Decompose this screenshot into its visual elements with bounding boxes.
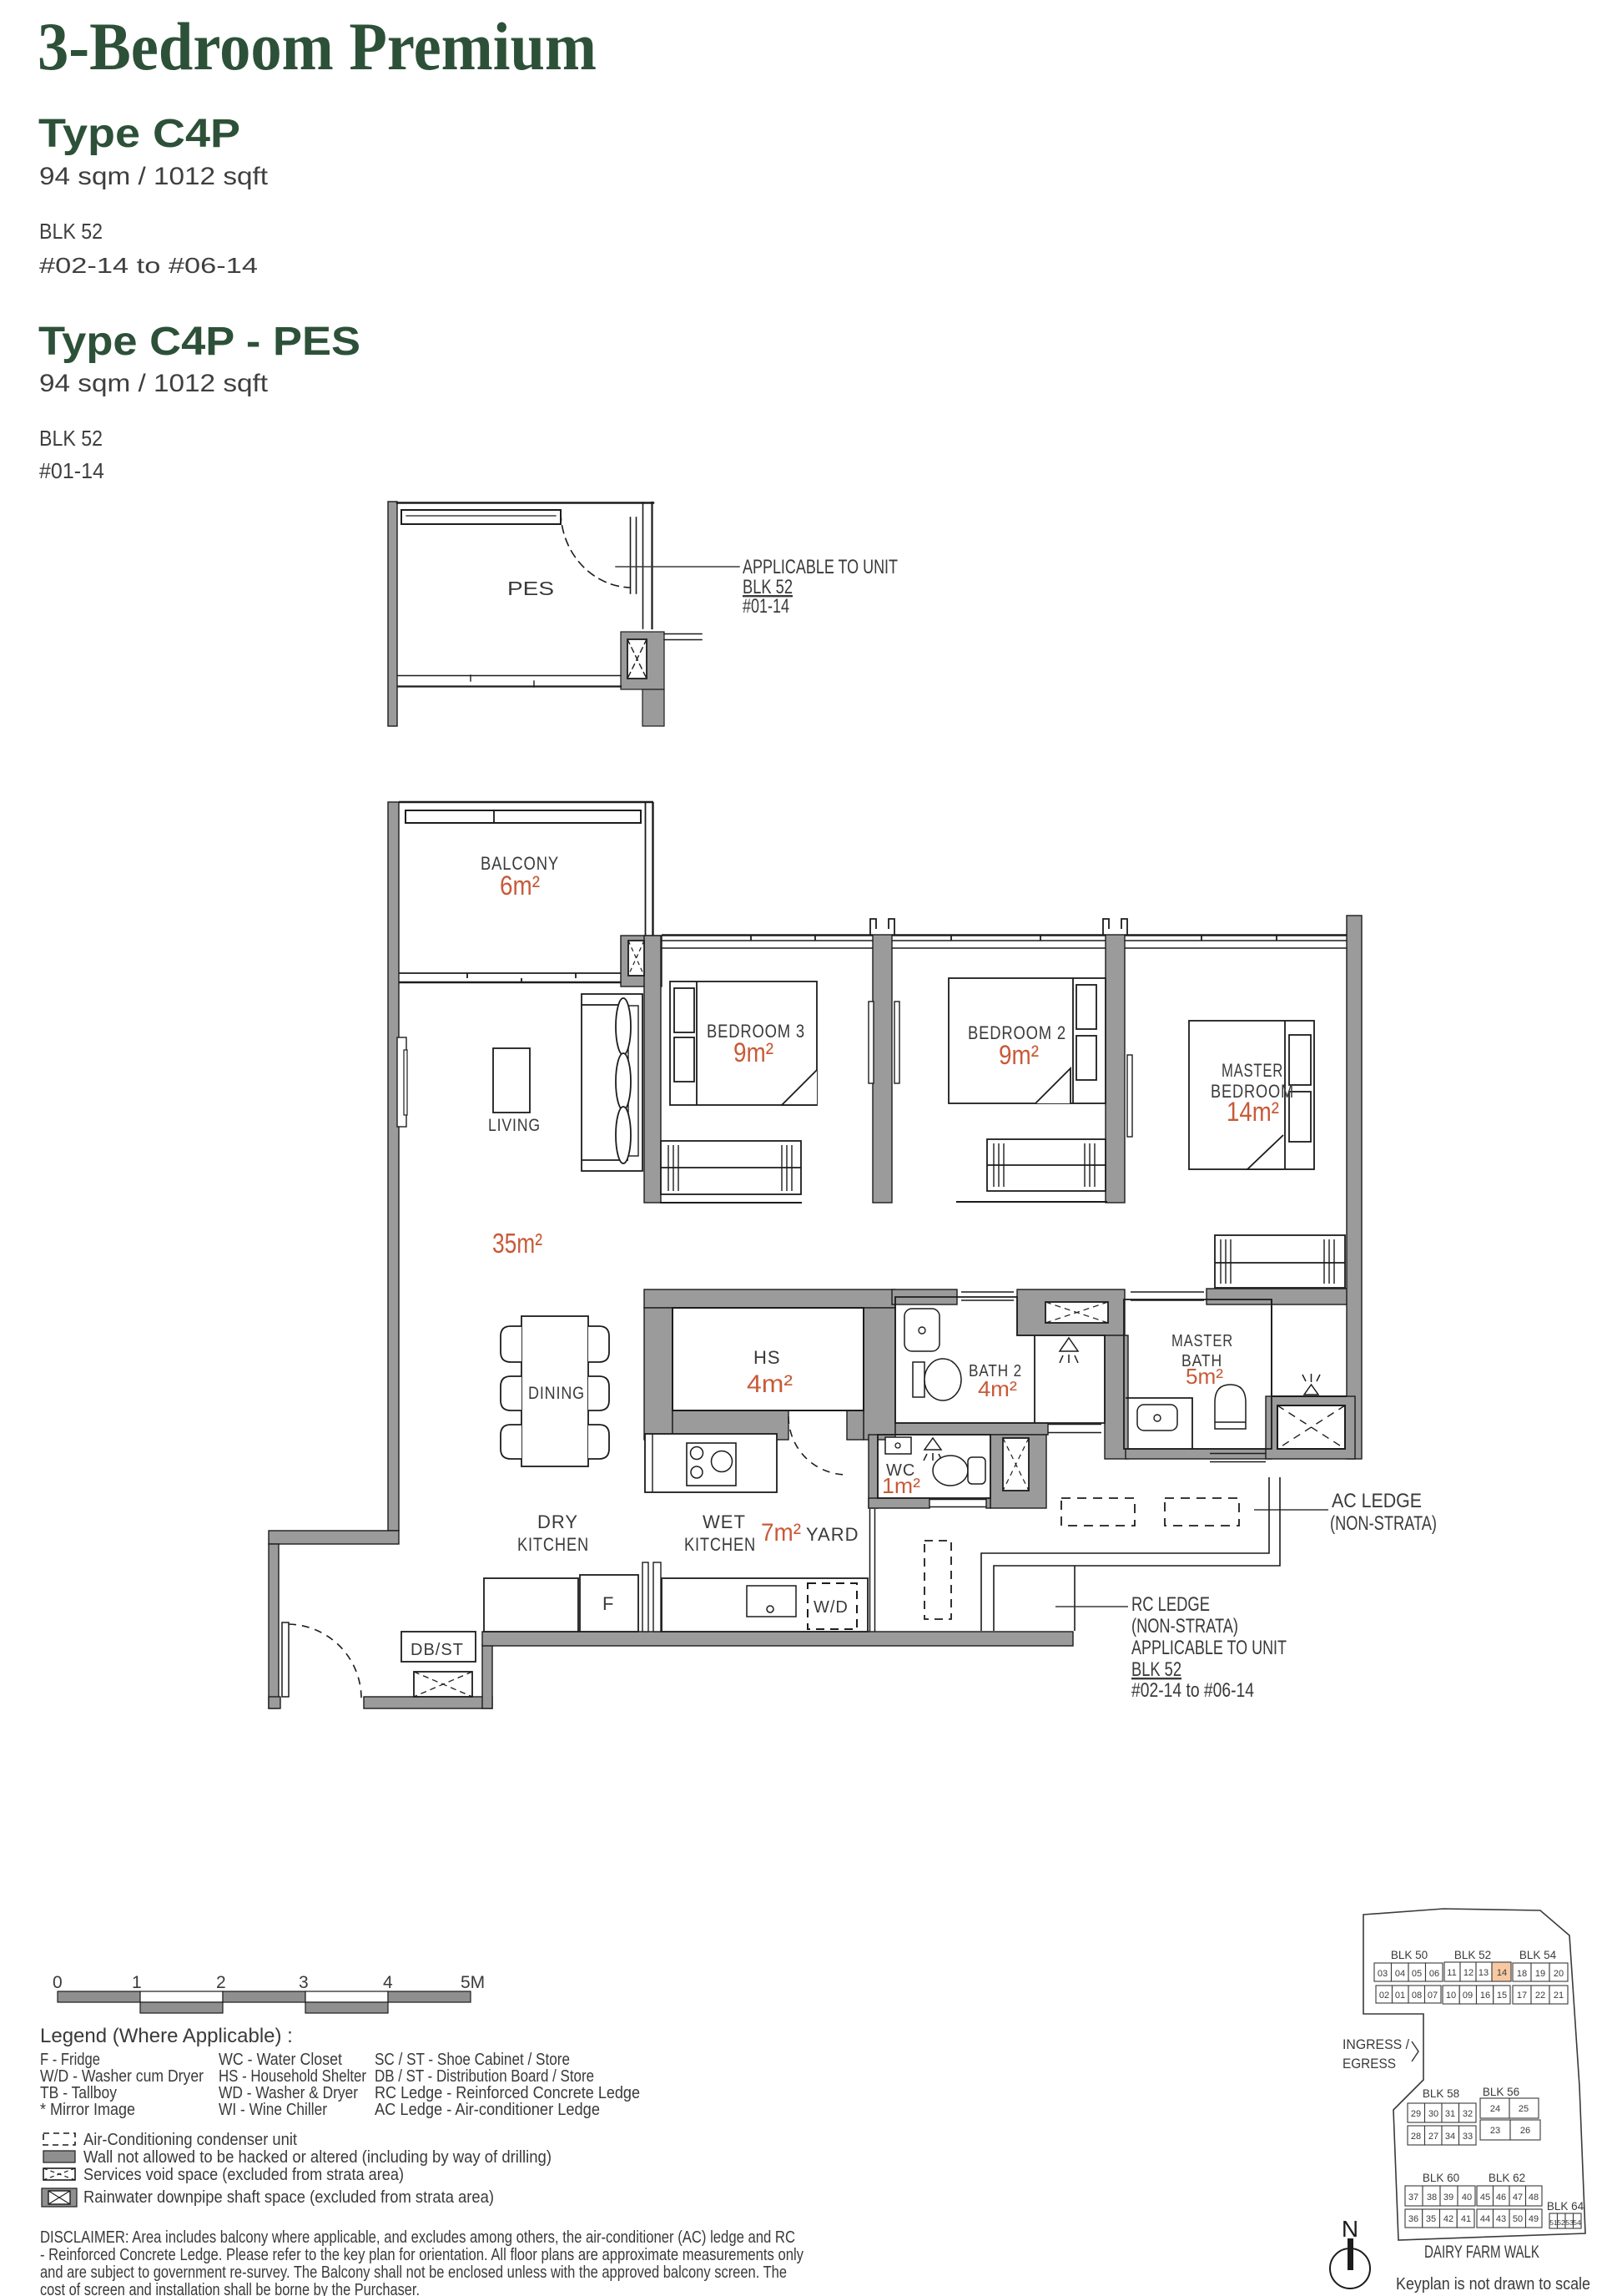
svg-text:13: 13	[1479, 1968, 1489, 1978]
svg-text:(NON-STRATA): (NON-STRATA)	[1131, 1615, 1238, 1637]
svg-text:#01-14: #01-14	[743, 595, 789, 618]
svg-text:Type C4P: Type C4P	[38, 112, 240, 156]
svg-text:18: 18	[1517, 1969, 1527, 1979]
svg-text:AC LEDGE: AC LEDGE	[1332, 1490, 1422, 1512]
svg-text:3-Bedroom Premium: 3-Bedroom Premium	[38, 8, 597, 84]
svg-text:HS - Household Shelter: HS - Household Shelter	[219, 2067, 366, 2086]
svg-text:29: 29	[1411, 2109, 1421, 2119]
svg-text:LIVING: LIVING	[488, 1116, 541, 1135]
svg-text:14: 14	[1497, 1968, 1507, 1978]
svg-text:BLK 62: BLK 62	[1489, 2172, 1525, 2184]
svg-text:WET: WET	[703, 1511, 746, 1532]
svg-text:DINING: DINING	[528, 1384, 585, 1403]
svg-text:37: 37	[1408, 2193, 1418, 2203]
svg-text:cost of screen and installatio: cost of screen and installation shall be…	[40, 2281, 420, 2296]
svg-text:MASTER: MASTER	[1222, 1060, 1283, 1081]
svg-text:16: 16	[1480, 1991, 1490, 2001]
svg-text:43: 43	[1496, 2214, 1506, 2224]
svg-text:11: 11	[1447, 1968, 1456, 1978]
svg-text:14m²: 14m²	[1227, 1097, 1279, 1127]
svg-text:RC LEDGE: RC LEDGE	[1131, 1593, 1210, 1616]
svg-text:02: 02	[1379, 1991, 1389, 2001]
svg-text:INGRESS /: INGRESS /	[1343, 2036, 1409, 2052]
svg-text:DRY: DRY	[537, 1511, 578, 1532]
svg-text:49: 49	[1529, 2214, 1539, 2224]
svg-text:EGRESS: EGRESS	[1343, 2056, 1396, 2071]
svg-text:10: 10	[1446, 1991, 1456, 2001]
svg-text:KITCHEN: KITCHEN	[684, 1534, 756, 1555]
svg-text:04: 04	[1395, 1969, 1405, 1979]
svg-text:05: 05	[1412, 1969, 1422, 1979]
svg-text:5M: 5M	[461, 1973, 485, 1992]
svg-text:35m²: 35m²	[492, 1228, 542, 1259]
svg-text:9m²: 9m²	[733, 1037, 773, 1067]
svg-text:94 sqm / 1012 sqft: 94 sqm / 1012 sqft	[39, 370, 269, 397]
svg-text:35: 35	[1426, 2214, 1436, 2224]
svg-text:21: 21	[1554, 1991, 1564, 2001]
svg-text:DISCLAIMER: Area includes balc: DISCLAIMER: Area includes balcony where …	[40, 2228, 795, 2247]
svg-text:DB/ST: DB/ST	[411, 1641, 464, 1659]
svg-text:BLK 50: BLK 50	[1391, 1949, 1428, 1961]
svg-text:5m²: 5m²	[1186, 1364, 1223, 1389]
svg-text:BLK 52: BLK 52	[39, 219, 103, 244]
svg-text:08: 08	[1412, 1991, 1422, 2001]
svg-text:50: 50	[1513, 2214, 1523, 2224]
svg-text:F - Fridge: F - Fridge	[40, 2051, 100, 2069]
svg-text:WD - Washer & Dryer: WD - Washer & Dryer	[219, 2084, 358, 2102]
svg-text:BLK 52: BLK 52	[1131, 1658, 1181, 1681]
svg-text:01: 01	[1395, 1991, 1405, 2001]
svg-text:APPLICABLE TO UNIT: APPLICABLE TO UNIT	[1131, 1637, 1287, 1659]
svg-text:54: 54	[1573, 2218, 1581, 2227]
svg-text:#01-14: #01-14	[39, 458, 104, 483]
svg-text:39: 39	[1443, 2193, 1453, 2203]
svg-text:15: 15	[1497, 1991, 1507, 2001]
svg-text:46: 46	[1496, 2193, 1506, 2203]
svg-text:Type C4P - PES: Type C4P - PES	[38, 320, 360, 364]
svg-text:0: 0	[53, 1973, 63, 1992]
svg-text:PES: PES	[507, 578, 554, 599]
svg-text:BLK 60: BLK 60	[1423, 2172, 1459, 2184]
svg-text:DAIRY FARM WALK: DAIRY FARM WALK	[1424, 2243, 1539, 2262]
svg-text:31: 31	[1445, 2109, 1455, 2119]
svg-text:and are subject to government: and are subject to government re-survey.…	[40, 2263, 787, 2282]
svg-text:HS: HS	[753, 1347, 781, 1368]
svg-text:28: 28	[1411, 2132, 1421, 2142]
svg-text:22: 22	[1535, 1991, 1545, 2001]
svg-text:TB - Tallboy: TB - Tallboy	[40, 2084, 117, 2102]
svg-text:7m²: 7m²	[761, 1519, 801, 1547]
svg-text:BLK 54: BLK 54	[1519, 1949, 1557, 1961]
svg-text:19: 19	[1535, 1969, 1545, 1979]
svg-text:AC Ledge - Air-conditioner Led: AC Ledge - Air-conditioner Ledge	[375, 2101, 600, 2119]
svg-text:47: 47	[1513, 2193, 1523, 2203]
svg-text:WI - Wine Chiller: WI - Wine Chiller	[219, 2101, 327, 2119]
svg-text:2: 2	[216, 1973, 226, 1992]
svg-text:Rainwater downpipe shaft space: Rainwater downpipe shaft space (excluded…	[83, 2188, 494, 2207]
svg-text:BLK 52: BLK 52	[39, 426, 103, 451]
svg-text:Keyplan is not drawn to scale: Keyplan is not drawn to scale	[1396, 2275, 1590, 2293]
svg-text:94 sqm / 1012 sqft: 94 sqm / 1012 sqft	[39, 163, 269, 190]
svg-text:W/D - Washer cum Dryer: W/D - Washer cum Dryer	[40, 2067, 204, 2086]
svg-text:1: 1	[132, 1973, 142, 1992]
svg-text:4m²: 4m²	[978, 1376, 1017, 1401]
svg-text:BLK 56: BLK 56	[1483, 2086, 1519, 2098]
svg-text:Wall not allowed to be hacked: Wall not allowed to be hacked or altered…	[83, 2148, 552, 2167]
svg-text:42: 42	[1443, 2214, 1453, 2224]
svg-text:1m²: 1m²	[882, 1473, 920, 1498]
svg-text:41: 41	[1461, 2214, 1471, 2224]
svg-text:W/D: W/D	[814, 1598, 849, 1617]
svg-text:* Mirror Image: * Mirror Image	[40, 2101, 135, 2119]
svg-text:40: 40	[1462, 2193, 1472, 2203]
svg-text:03: 03	[1378, 1969, 1388, 1979]
svg-text:APPLICABLE TO UNIT: APPLICABLE TO UNIT	[743, 556, 898, 578]
svg-text:#02-14 to #06-14: #02-14 to #06-14	[39, 253, 258, 278]
svg-text:27: 27	[1428, 2132, 1438, 2142]
svg-text:Services void space (excluded: Services void space (excluded from strat…	[83, 2166, 404, 2184]
svg-text:45: 45	[1480, 2193, 1490, 2203]
svg-text:N: N	[1342, 2216, 1358, 2242]
svg-text:BLK 64: BLK 64	[1547, 2200, 1584, 2213]
svg-text:4: 4	[383, 1973, 393, 1992]
svg-text:4m²: 4m²	[747, 1370, 793, 1398]
svg-text:6m²: 6m²	[500, 870, 540, 901]
svg-text:34: 34	[1445, 2132, 1455, 2142]
svg-text:23: 23	[1490, 2126, 1500, 2136]
svg-text:9m²: 9m²	[999, 1040, 1039, 1070]
svg-text:33: 33	[1463, 2132, 1473, 2142]
svg-text:36: 36	[1408, 2214, 1418, 2224]
svg-text:17: 17	[1517, 1991, 1527, 2001]
svg-text:- Reinforced Concrete Ledge. P: - Reinforced Concrete Ledge. Please refe…	[40, 2246, 804, 2264]
svg-text:38: 38	[1427, 2193, 1437, 2203]
svg-text:52: 52	[1557, 2218, 1565, 2227]
svg-text:07: 07	[1428, 1991, 1438, 2001]
svg-text:48: 48	[1529, 2193, 1539, 2203]
svg-text:30: 30	[1428, 2109, 1438, 2119]
svg-text:12: 12	[1463, 1968, 1474, 1978]
svg-text:DB / ST - Distribution Board /: DB / ST - Distribution Board / Store	[375, 2067, 594, 2086]
svg-text:32: 32	[1463, 2109, 1473, 2119]
svg-text:BLK 52: BLK 52	[1454, 1949, 1491, 1961]
svg-text:44: 44	[1480, 2214, 1490, 2224]
svg-text:Legend (Where Applicable) :: Legend (Where Applicable) :	[40, 2025, 293, 2047]
svg-text:(NON-STRATA): (NON-STRATA)	[1330, 1512, 1437, 1535]
svg-text:F: F	[602, 1593, 614, 1614]
svg-text:20: 20	[1554, 1969, 1564, 1979]
svg-text:BLK 58: BLK 58	[1423, 2087, 1459, 2100]
svg-text:KITCHEN: KITCHEN	[517, 1534, 589, 1555]
svg-text:26: 26	[1520, 2126, 1530, 2136]
svg-text:SC / ST - Shoe Cabinet / Store: SC / ST - Shoe Cabinet / Store	[375, 2051, 570, 2069]
svg-text:25: 25	[1519, 2104, 1529, 2114]
svg-text:3: 3	[299, 1973, 309, 1992]
svg-text:RC Ledge - Reinforced Concrete: RC Ledge - Reinforced Concrete Ledge	[375, 2084, 640, 2102]
svg-text:06: 06	[1429, 1969, 1439, 1979]
svg-text:MASTER: MASTER	[1171, 1332, 1233, 1350]
svg-text:Air-Conditioning condenser uni: Air-Conditioning condenser unit	[83, 2131, 297, 2149]
svg-text:#02-14 to #06-14: #02-14 to #06-14	[1131, 1679, 1254, 1702]
svg-text:09: 09	[1463, 1991, 1473, 2001]
svg-text:WC - Water Closet: WC - Water Closet	[219, 2051, 342, 2069]
svg-text:YARD: YARD	[806, 1524, 859, 1545]
svg-text:24: 24	[1490, 2104, 1500, 2114]
